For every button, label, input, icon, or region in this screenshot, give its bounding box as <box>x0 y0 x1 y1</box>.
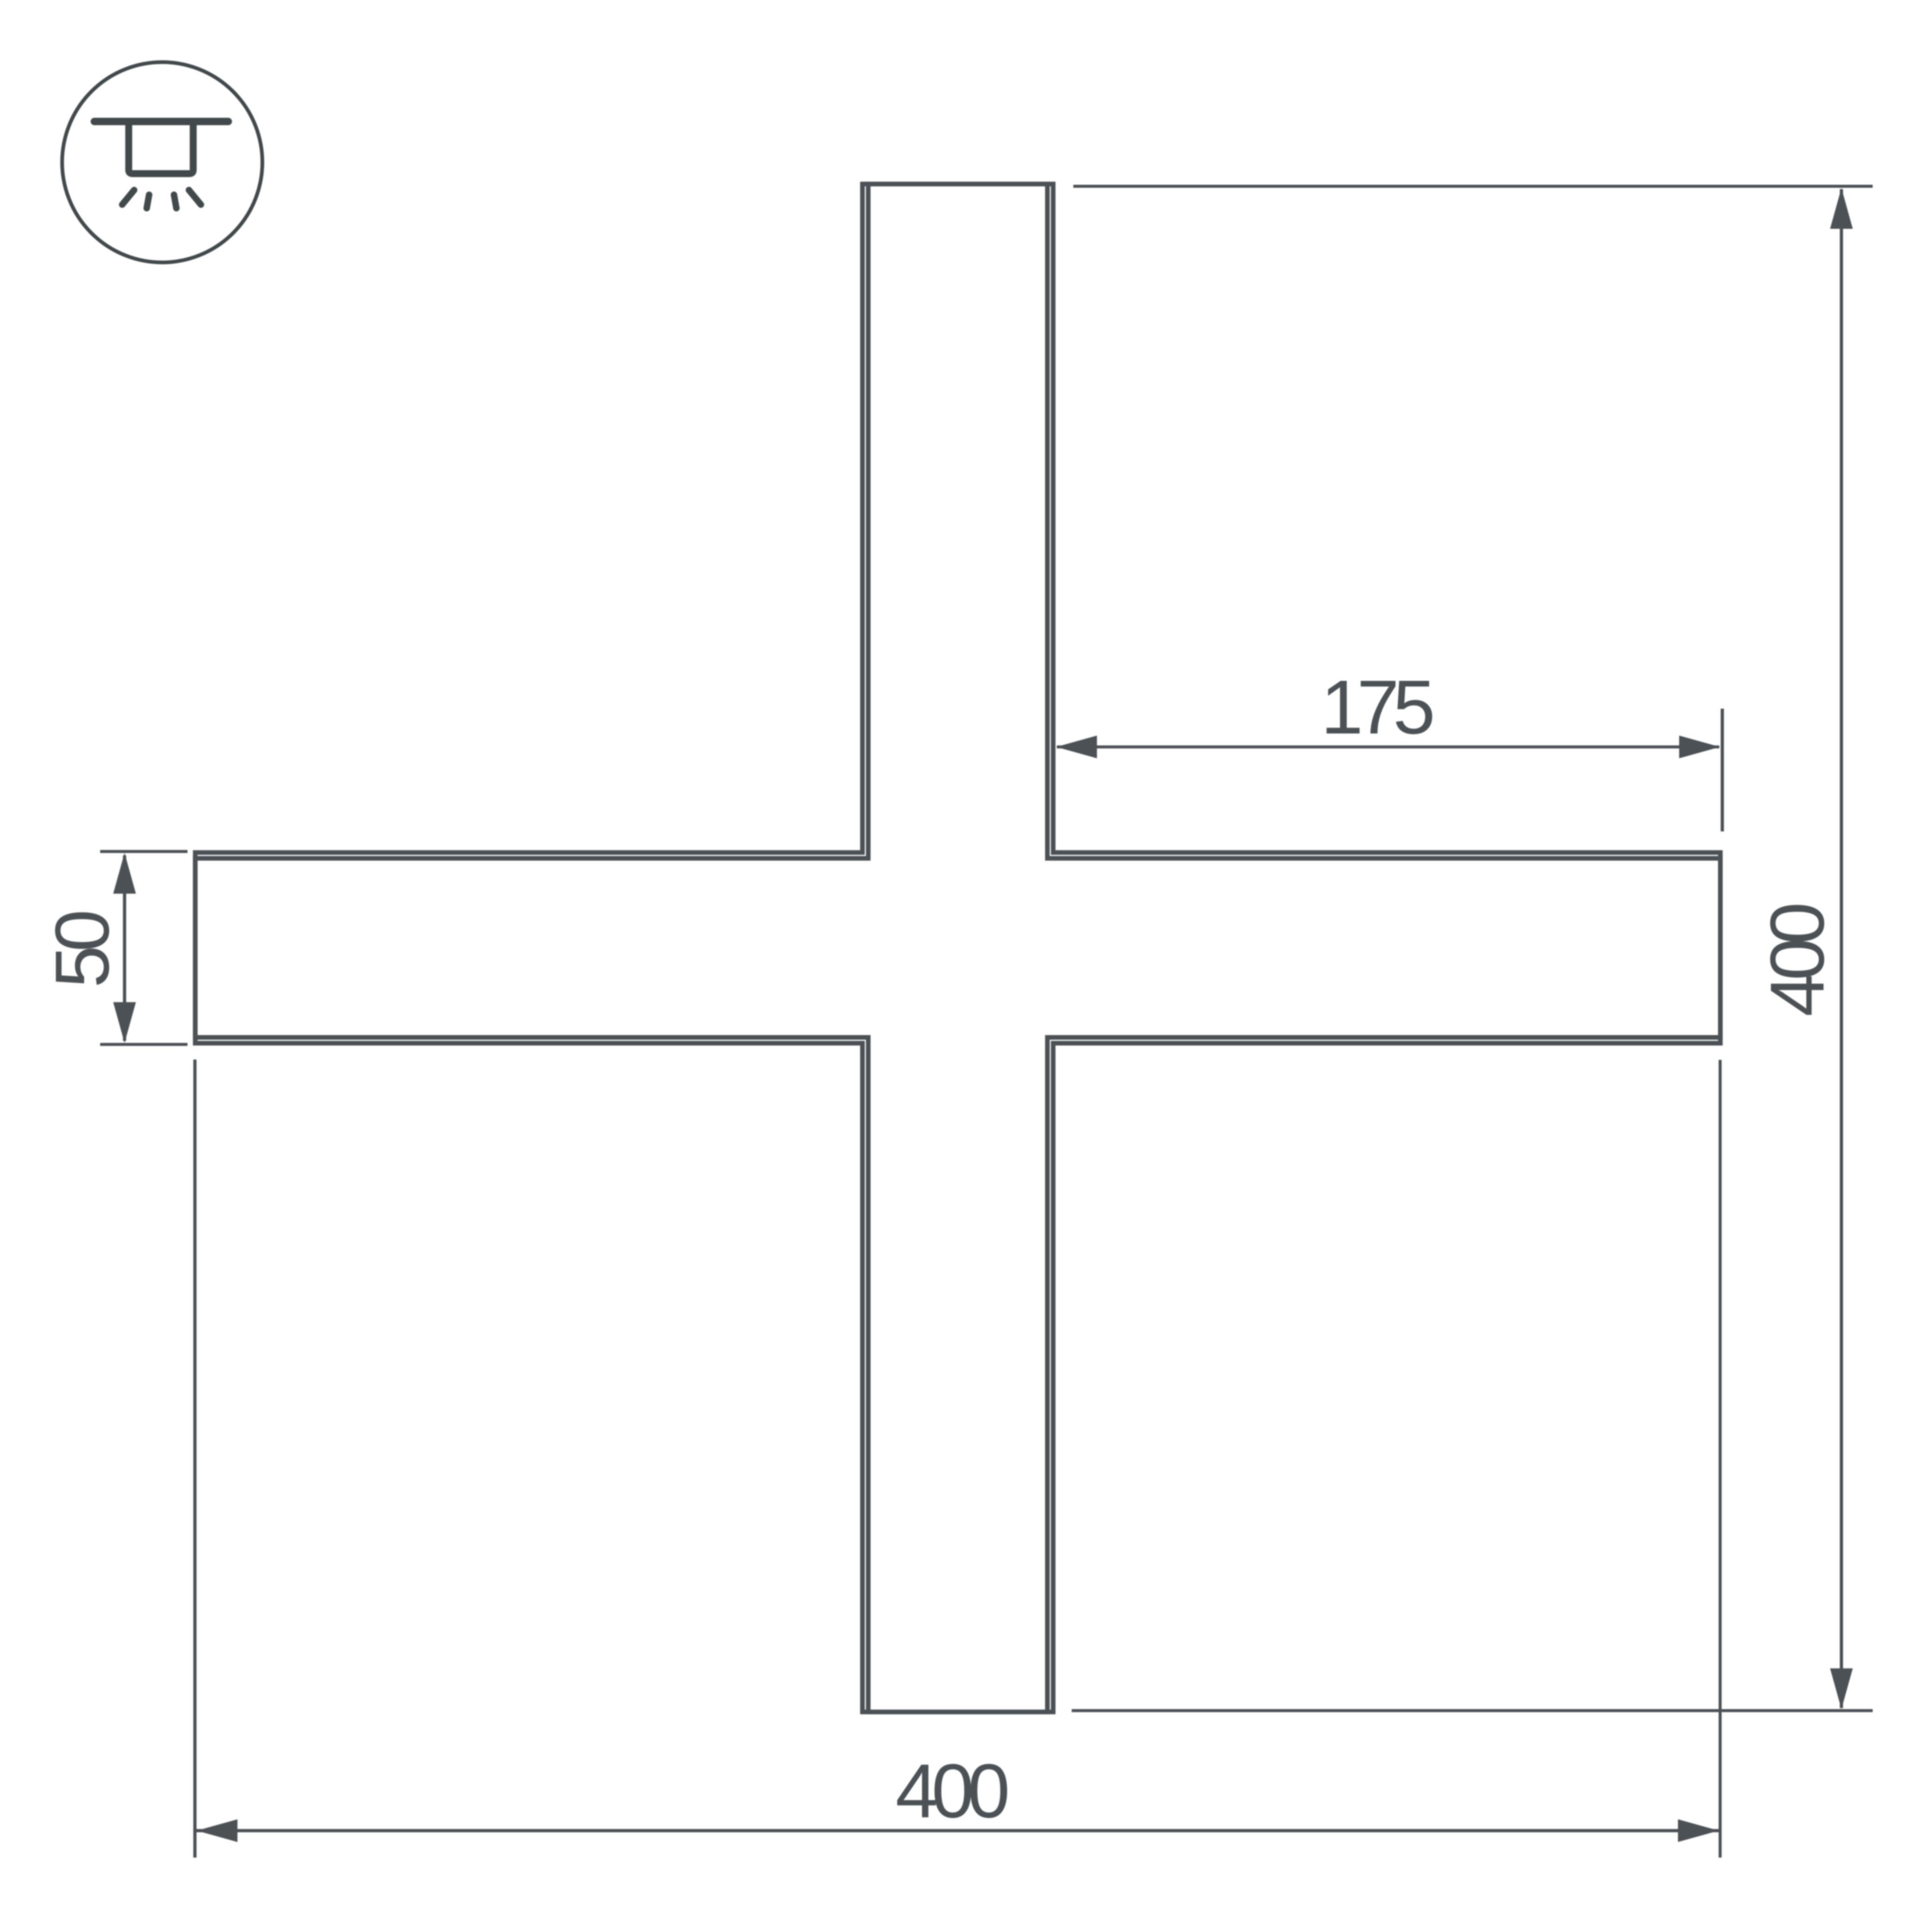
svg-text:175: 175 <box>1321 664 1432 750</box>
svg-text:400: 400 <box>896 1748 1008 1834</box>
svg-text:50: 50 <box>39 912 125 988</box>
svg-text:400: 400 <box>1754 905 1840 1017</box>
